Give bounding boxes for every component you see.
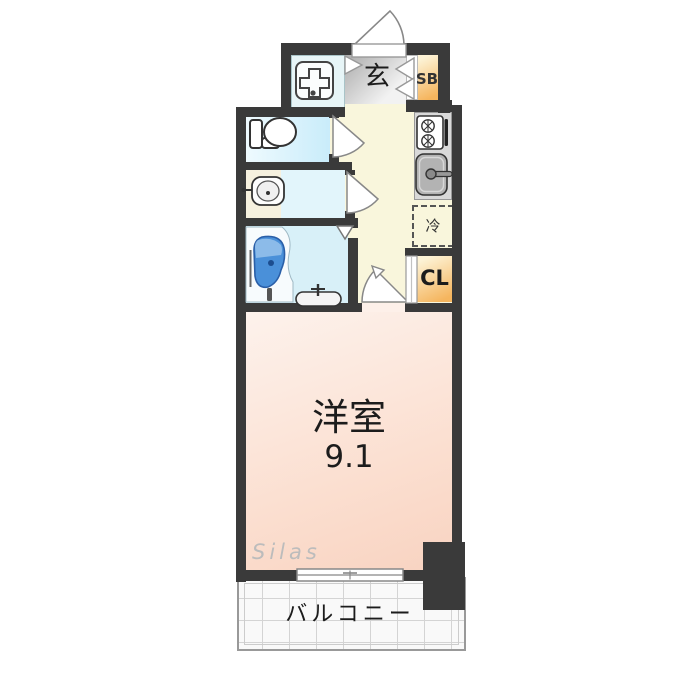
watermark: Silas — [252, 541, 342, 564]
wall-segment — [281, 43, 291, 117]
wall-segment — [348, 238, 358, 312]
wall-segment — [345, 170, 355, 175]
entrance-label: 玄 — [352, 63, 402, 92]
wall-segment — [236, 303, 362, 312]
wall-pillar — [423, 542, 465, 610]
western-room-label: 洋室 — [246, 398, 452, 439]
wall-segment — [329, 110, 339, 118]
wall-segment — [405, 303, 462, 312]
washbasin-room-floor-right — [281, 170, 345, 218]
toilet-room-floor — [246, 113, 330, 162]
washing-machine-area-floor — [291, 55, 345, 108]
refrigerator-label: 冷 — [412, 218, 454, 235]
shoe-box-label: SB — [412, 71, 442, 88]
wall-segment — [348, 218, 358, 228]
closet-label: CL — [417, 267, 452, 290]
wall-segment — [236, 162, 352, 170]
wall-segment — [281, 43, 450, 55]
wall-segment — [406, 100, 452, 112]
wall-segment — [452, 105, 462, 570]
bathroom-floor — [246, 226, 348, 303]
wall-segment — [405, 248, 462, 256]
western-room-size: 9.1 — [246, 440, 452, 474]
wall-segment — [236, 218, 352, 226]
room-doorway-gap — [362, 303, 405, 312]
balcony-label: バルコニー — [250, 603, 450, 627]
wall-segment — [402, 570, 425, 581]
wall-segment — [236, 570, 298, 581]
washbasin-room-floor-left — [246, 170, 281, 218]
floor-plan: 玄 SB 冷 CL 洋室 9.1 バルコニー Silas — [0, 0, 700, 700]
kitchen-counter — [414, 112, 452, 200]
wall-segment — [236, 107, 246, 582]
